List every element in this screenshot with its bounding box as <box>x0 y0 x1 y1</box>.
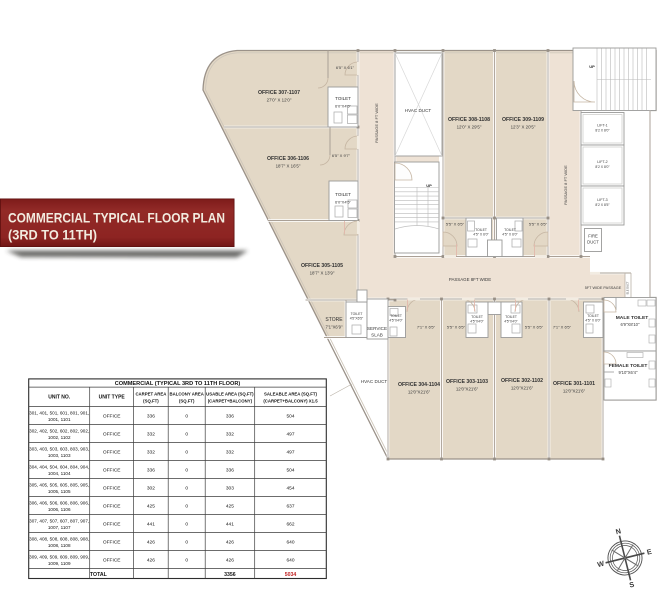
svg-text:MALE TOILET: MALE TOILET <box>616 315 649 321</box>
svg-text:303, 403, 503, 603, 803, 903,: 303, 403, 503, 603, 803, 903, <box>29 446 89 451</box>
svg-text:OFFICE: OFFICE <box>103 450 121 456</box>
svg-text:5'5" X 6'5": 5'5" X 6'5" <box>525 325 544 330</box>
svg-text:UNIT TYPE: UNIT TYPE <box>99 395 126 401</box>
svg-text:497: 497 <box>286 432 294 438</box>
svg-text:1008, 1108: 1008, 1108 <box>48 543 71 548</box>
svg-text:4'5"X4'0": 4'5"X4'0" <box>389 319 403 323</box>
svg-text:0: 0 <box>185 540 188 546</box>
svg-text:(CARPET+BALCONY): (CARPET+BALCONY) <box>208 399 253 404</box>
svg-text:5'5" X 6'5": 5'5" X 6'5" <box>446 222 465 227</box>
svg-text:332: 332 <box>147 450 155 456</box>
svg-text:7'1" X 6'5": 7'1" X 6'5" <box>417 325 436 330</box>
svg-text:TOILET: TOILET <box>390 314 402 318</box>
svg-text:306, 406, 506, 606, 806, 906,: 306, 406, 506, 606, 806, 906, <box>29 500 89 505</box>
svg-text:6'0"X4'5": 6'0"X4'5" <box>335 104 352 109</box>
svg-text:336: 336 <box>147 468 155 474</box>
svg-text:1006, 1106: 1006, 1106 <box>48 507 71 512</box>
svg-text:3356: 3356 <box>224 572 236 578</box>
svg-text:W: W <box>596 559 605 569</box>
svg-text:6'5" X 9'7": 6'5" X 9'7" <box>332 153 351 158</box>
svg-text:304, 404, 504, 604, 804, 904,: 304, 404, 504, 604, 804, 904, <box>29 464 89 469</box>
svg-text:12'0"X21'6": 12'0"X21'6" <box>456 387 479 392</box>
svg-text:7'1" X 6'5": 7'1" X 6'5" <box>553 325 572 330</box>
svg-text:OFFICE: OFFICE <box>103 558 121 564</box>
svg-text:12'0"X21'6": 12'0"X21'6" <box>511 386 534 391</box>
svg-text:COMMERCIAL TYPICAL FLOOR PLAN: COMMERCIAL TYPICAL FLOOR PLAN <box>8 211 225 226</box>
svg-text:0: 0 <box>185 558 188 564</box>
svg-text:454: 454 <box>286 486 294 492</box>
svg-text:302: 302 <box>147 486 155 492</box>
svg-text:27'0" X 12'0": 27'0" X 12'0" <box>267 98 292 103</box>
svg-text:332: 332 <box>226 450 234 456</box>
svg-text:7'1"X6'9": 7'1"X6'9" <box>325 325 343 330</box>
svg-text:(3RD TO 11TH): (3RD TO 11TH) <box>8 228 97 243</box>
svg-text:TOILET: TOILET <box>335 96 351 101</box>
svg-text:12'0"X21'6": 12'0"X21'6" <box>563 389 586 394</box>
svg-text:425: 425 <box>226 504 234 510</box>
svg-text:UNIT NO.: UNIT NO. <box>48 395 71 401</box>
svg-text:4'5" X 6'0": 4'5" X 6'0" <box>473 233 489 237</box>
svg-text:PASSAGE 8 FT WIDE: PASSAGE 8 FT WIDE <box>374 103 379 143</box>
svg-text:UP: UP <box>426 183 432 188</box>
svg-text:4'5"X4'0": 4'5"X4'0" <box>470 320 484 324</box>
svg-text:332: 332 <box>226 432 234 438</box>
svg-text:305, 405, 505, 605, 805, 905,: 305, 405, 505, 605, 805, 905, <box>29 482 89 487</box>
svg-text:0: 0 <box>185 486 188 492</box>
svg-text:OFFICE: OFFICE <box>103 504 121 510</box>
svg-text:336: 336 <box>147 414 155 420</box>
svg-text:336: 336 <box>226 468 234 474</box>
svg-text:OFFICE 304-1104: OFFICE 304-1104 <box>398 382 440 388</box>
svg-text:S: S <box>628 580 635 590</box>
svg-text:1005, 1105: 1005, 1105 <box>48 489 71 494</box>
svg-text:18'7" X 16'5": 18'7" X 16'5" <box>276 164 301 169</box>
svg-text:332: 332 <box>147 432 155 438</box>
svg-text:5'5" X 6'5": 5'5" X 6'5" <box>529 222 548 227</box>
svg-text:640: 640 <box>286 540 294 546</box>
svg-text:(SQ.FT): (SQ.FT) <box>179 399 195 404</box>
svg-text:TOTAL: TOTAL <box>90 572 108 578</box>
svg-text:CARPET AREA: CARPET AREA <box>135 392 166 397</box>
svg-text:OFFICE 309-1109: OFFICE 309-1109 <box>502 117 544 123</box>
svg-text:LIFT-3: LIFT-3 <box>597 198 607 202</box>
svg-text:(CARPET+BALCONY) X1.5: (CARPET+BALCONY) X1.5 <box>263 399 318 404</box>
svg-text:OFFICE 305-1105: OFFICE 305-1105 <box>301 263 343 269</box>
svg-text:426: 426 <box>226 558 234 564</box>
svg-text:OFFICE 307-1107: OFFICE 307-1107 <box>258 90 300 96</box>
svg-text:4'5"X6'5": 4'5"X6'5" <box>350 317 364 321</box>
svg-text:0: 0 <box>185 432 188 438</box>
svg-text:TOILET: TOILET <box>504 228 516 232</box>
svg-text:TOILET: TOILET <box>351 312 363 316</box>
svg-text:441: 441 <box>147 522 155 528</box>
svg-text:COMMERCIAL (TYPICAL 3RD TO 11T: COMMERCIAL (TYPICAL 3RD TO 11TH FLOOR) <box>115 381 241 387</box>
svg-text:441: 441 <box>226 522 234 528</box>
svg-text:OFFICE: OFFICE <box>103 414 121 420</box>
svg-text:0: 0 <box>185 414 188 420</box>
svg-text:303: 303 <box>226 486 234 492</box>
svg-text:USABLE AREA (SQ.FT): USABLE AREA (SQ.FT) <box>206 392 254 397</box>
svg-text:4'5"X4'0": 4'5"X4'0" <box>504 320 518 324</box>
svg-text:HVAC DUCT: HVAC DUCT <box>405 108 432 113</box>
svg-text:OFFICE 308-1108: OFFICE 308-1108 <box>448 117 490 123</box>
svg-text:8'2 X 8'5": 8'2 X 8'5" <box>595 203 610 207</box>
svg-text:ELE DUCT: ELE DUCT <box>626 281 630 294</box>
svg-text:6'5" X 6'1": 6'5" X 6'1" <box>336 65 355 70</box>
svg-text:OFFICE: OFFICE <box>103 432 121 438</box>
svg-text:DUCT: DUCT <box>587 240 599 245</box>
svg-text:8'2 X 8'0": 8'2 X 8'0" <box>595 165 610 169</box>
svg-text:TOILET: TOILET <box>471 315 483 319</box>
svg-text:PASSAGE 8FT WIDE: PASSAGE 8FT WIDE <box>449 277 491 282</box>
svg-text:OFFICE 301-1101: OFFICE 301-1101 <box>553 381 595 387</box>
svg-text:SALEABLE AREA (SQ.FT): SALEABLE AREA (SQ.FT) <box>264 392 317 397</box>
svg-text:UP: UP <box>589 64 595 69</box>
svg-text:4'5" X 6'0": 4'5" X 6'0" <box>502 233 518 237</box>
svg-text:497: 497 <box>286 450 294 456</box>
svg-text:N: N <box>615 526 622 536</box>
svg-text:1007, 1107: 1007, 1107 <box>48 525 71 530</box>
svg-text:TOILET: TOILET <box>587 314 599 318</box>
svg-text:640: 640 <box>286 558 294 564</box>
svg-text:FIRE: FIRE <box>588 234 598 239</box>
svg-text:426: 426 <box>226 540 234 546</box>
svg-text:E: E <box>646 547 653 557</box>
svg-text:12'3" X 20'5": 12'3" X 20'5" <box>511 125 536 130</box>
svg-text:0: 0 <box>185 468 188 474</box>
svg-text:TOILET: TOILET <box>335 192 351 197</box>
svg-text:336: 336 <box>226 414 234 420</box>
svg-text:FEMALE TOILET: FEMALE TOILET <box>609 363 648 369</box>
svg-text:SERVICE: SERVICE <box>367 326 387 331</box>
svg-text:TOILET: TOILET <box>505 315 517 319</box>
svg-text:12'0" X 29'5": 12'0" X 29'5" <box>457 125 482 130</box>
svg-text:1003, 1103: 1003, 1103 <box>48 453 71 458</box>
svg-text:OFFICE 302-1102: OFFICE 302-1102 <box>501 378 543 384</box>
svg-text:9'10"X6'4": 9'10"X6'4" <box>618 370 638 375</box>
svg-text:426: 426 <box>147 540 155 546</box>
svg-text:LIFT-2: LIFT-2 <box>597 160 607 164</box>
svg-text:6'0"X4'5": 6'0"X4'5" <box>335 200 352 205</box>
svg-text:4'5" X 6'0": 4'5" X 6'0" <box>585 319 601 323</box>
svg-text:OFFICE: OFFICE <box>103 540 121 546</box>
svg-text:OFFICE: OFFICE <box>103 468 121 474</box>
svg-text:1001, 1101: 1001, 1101 <box>48 417 71 422</box>
svg-text:BALCONY AREA: BALCONY AREA <box>170 392 204 397</box>
svg-text:662: 662 <box>286 522 294 528</box>
svg-text:HVAC DUCT: HVAC DUCT <box>361 379 388 384</box>
svg-text:5034: 5034 <box>285 572 297 578</box>
svg-text:5FT WIDE PASSAGE: 5FT WIDE PASSAGE <box>585 286 622 290</box>
svg-text:TOILET: TOILET <box>475 228 487 232</box>
svg-text:504: 504 <box>286 414 294 420</box>
svg-text:(SQ.FT): (SQ.FT) <box>143 399 159 404</box>
svg-text:504: 504 <box>286 468 294 474</box>
svg-text:308, 408, 508, 608, 808, 908,: 308, 408, 508, 608, 808, 908, <box>29 536 89 541</box>
svg-text:426: 426 <box>147 558 155 564</box>
svg-text:PASSAGE 8 FT WIDE: PASSAGE 8 FT WIDE <box>563 165 568 205</box>
svg-text:6'9"X8'10": 6'9"X8'10" <box>620 322 640 327</box>
svg-text:637: 637 <box>286 504 294 510</box>
svg-text:12'0"X21'6": 12'0"X21'6" <box>408 390 431 395</box>
svg-text:301, 401, 501, 601, 801, 901,: 301, 401, 501, 601, 801, 901, <box>29 410 89 415</box>
svg-text:425: 425 <box>147 504 155 510</box>
svg-text:5'5" X 6'5": 5'5" X 6'5" <box>447 325 466 330</box>
svg-text:OFFICE 303-1103: OFFICE 303-1103 <box>446 379 488 385</box>
svg-text:SLAB: SLAB <box>371 333 383 338</box>
svg-text:0: 0 <box>185 450 188 456</box>
svg-text:309, 409, 509, 609, 809, 909,: 309, 409, 509, 609, 809, 909, <box>29 554 89 559</box>
svg-text:OFFICE 306-1106: OFFICE 306-1106 <box>267 156 309 162</box>
svg-text:OFFICE: OFFICE <box>103 522 121 528</box>
svg-text:1002, 1102: 1002, 1102 <box>48 435 71 440</box>
svg-text:1004, 1104: 1004, 1104 <box>48 471 71 476</box>
svg-text:1009, 1109: 1009, 1109 <box>48 561 71 566</box>
svg-text:LIFT-1: LIFT-1 <box>597 124 607 128</box>
svg-text:8'2 X 8'0": 8'2 X 8'0" <box>595 129 610 133</box>
svg-text:302, 402, 502, 602, 802, 902,: 302, 402, 502, 602, 802, 902, <box>29 428 89 433</box>
svg-text:0: 0 <box>185 522 188 528</box>
svg-text:STORE: STORE <box>325 317 343 323</box>
svg-text:18'7" X 13'9": 18'7" X 13'9" <box>310 271 335 276</box>
svg-text:0: 0 <box>185 504 188 510</box>
svg-text:OFFICE: OFFICE <box>103 486 121 492</box>
svg-text:307, 407, 507, 607, 807, 907,: 307, 407, 507, 607, 807, 907, <box>29 518 89 523</box>
